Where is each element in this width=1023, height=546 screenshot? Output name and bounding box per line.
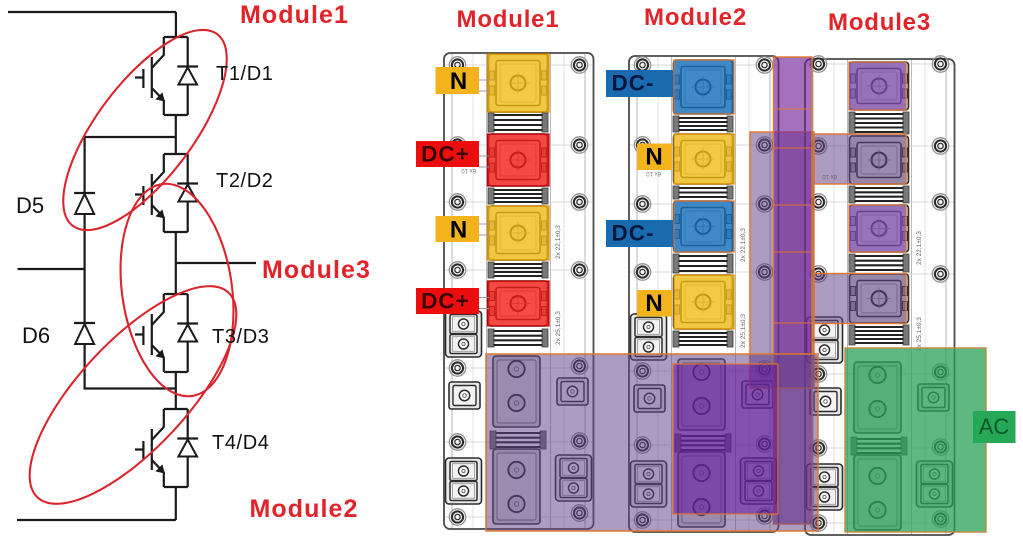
svg-text:AC: AC [979,414,1010,439]
svg-text:N: N [450,68,468,95]
svg-text:DC-: DC- [612,221,655,246]
svg-text:T3/D3: T3/D3 [212,326,269,348]
svg-text:T1/D1: T1/D1 [216,63,273,85]
svg-text:DC+: DC+ [421,289,470,314]
svg-text:2x 25,1±0,3: 2x 25,1±0,3 [740,314,747,348]
svg-text:N: N [645,290,663,317]
svg-text:Module1: Module1 [240,1,349,29]
svg-text:T4/D4: T4/D4 [212,432,269,454]
svg-text:N: N [450,217,468,244]
svg-text:N: N [645,144,663,171]
svg-text:D6: D6 [22,323,50,348]
svg-text:Module3: Module3 [828,9,931,36]
svg-text:Module2: Module2 [644,4,747,31]
svg-text:2x 25,1±0,3: 2x 25,1±0,3 [555,311,562,345]
svg-text:D5: D5 [16,193,44,218]
svg-text:DC-: DC- [612,71,655,96]
svg-text:6x 10: 6x 10 [461,167,476,173]
svg-text:Module1: Module1 [457,6,560,33]
svg-text:6x 10: 6x 10 [646,170,661,176]
svg-text:2x 25,1±0,3: 2x 25,1±0,3 [916,317,923,351]
svg-text:Module2: Module2 [249,495,358,523]
svg-text:2x 22,1±0,3: 2x 22,1±0,3 [916,231,923,265]
svg-text:T2/D2: T2/D2 [216,170,273,192]
svg-text:Module3: Module3 [262,256,371,284]
svg-text:DC+: DC+ [421,142,470,167]
svg-text:2x 22,1±0,3: 2x 22,1±0,3 [555,225,562,259]
svg-text:2x 22,1±0,3: 2x 22,1±0,3 [740,228,747,262]
